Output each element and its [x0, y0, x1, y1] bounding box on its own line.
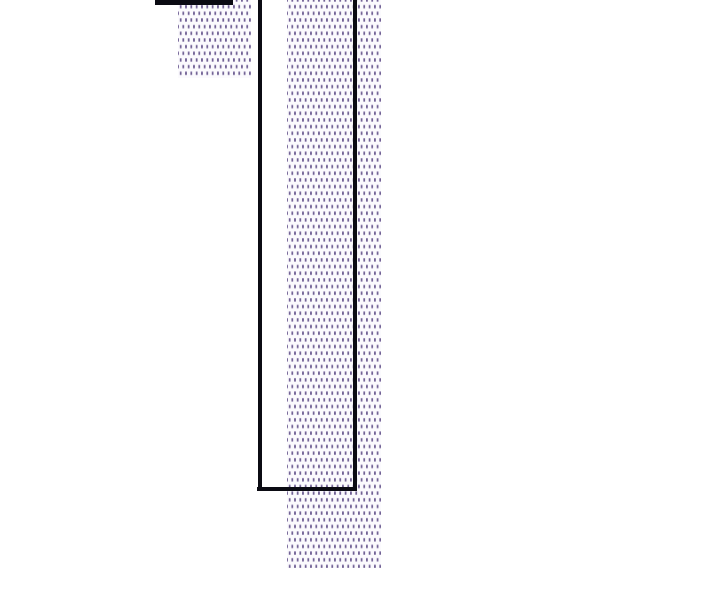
outline-left-edge	[258, 0, 262, 491]
small-hatched-bar	[178, 0, 251, 78]
black-cap-bar	[155, 0, 233, 5]
outline-right-edge	[353, 0, 357, 491]
chart-canvas	[0, 0, 720, 600]
large-hatched-bar	[287, 0, 381, 568]
outline-bottom-edge	[257, 487, 356, 491]
